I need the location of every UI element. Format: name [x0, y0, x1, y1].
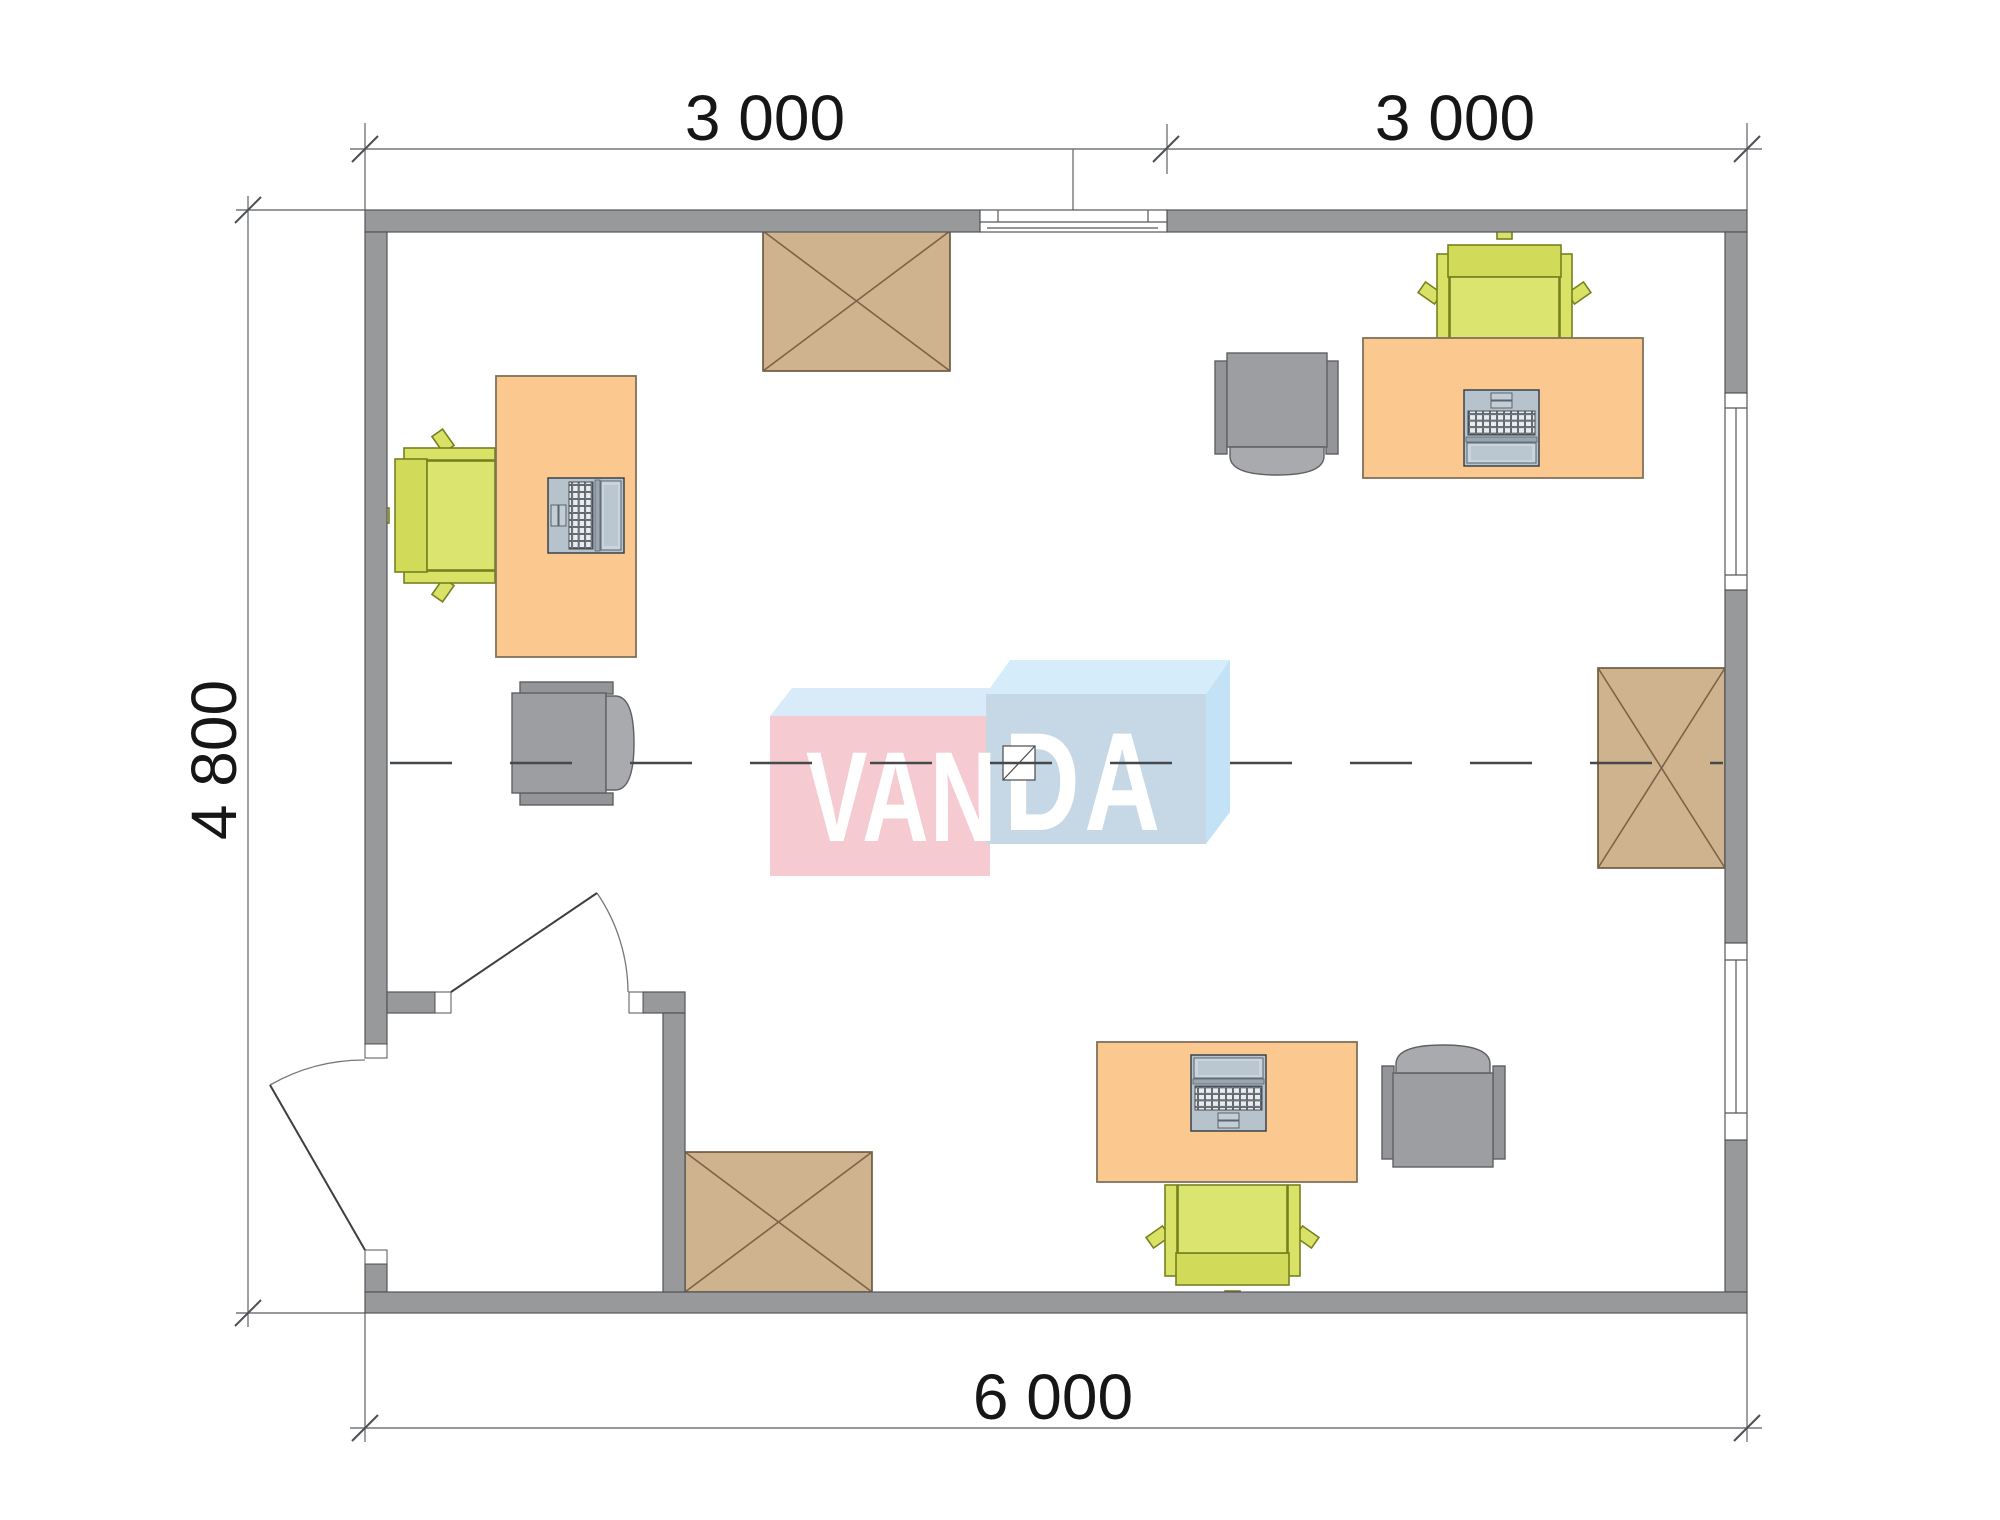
wall-top-right-segment: [1167, 210, 1747, 232]
lounge-chair-center-left: [512, 682, 634, 805]
window-right-upper: [1725, 393, 1747, 590]
wall-top-left-segment: [365, 210, 980, 232]
dimension-label-top-right: 3 000: [1375, 86, 1535, 150]
logo-blue-box-top-face: [986, 660, 1230, 694]
lounge-chair-top-right: [1215, 353, 1338, 475]
wall-left-lower: [365, 1264, 387, 1292]
task-chair-top-right: [1418, 229, 1591, 345]
lounge-chair-bottom-right: [1382, 1045, 1505, 1167]
floor-plan-drawing: VAN DA: [0, 0, 2000, 1520]
interior-door: [451, 893, 628, 992]
logo-text-right: DA: [1004, 704, 1165, 860]
crossed-cabinet-right: [1598, 668, 1725, 868]
wall-left-upper: [365, 232, 387, 1044]
laptop-top-left: [548, 478, 624, 553]
wall-partition-vertical: [663, 1013, 685, 1292]
crossed-cabinet-top: [763, 231, 950, 371]
dimension-label-bottom: 6 000: [973, 1365, 1133, 1429]
crossed-cabinet-bottom: [685, 1152, 872, 1292]
wall-bottom: [365, 1292, 1747, 1313]
window-top: [980, 210, 1167, 232]
wall-right-lower: [1725, 1140, 1747, 1292]
wall-right-upper: [1725, 232, 1747, 393]
logo-pink-box-top-face: [770, 688, 1012, 716]
floor-plan-canvas: VAN DA: [0, 0, 2000, 1520]
entrance-door: [270, 1060, 365, 1250]
laptop-bottom: [1191, 1055, 1266, 1131]
dimension-label-left: 4 800: [182, 680, 246, 840]
logo-text-left: VAN: [806, 725, 998, 868]
door-jambs: [365, 992, 643, 1264]
wall-partition-right: [643, 992, 685, 1013]
task-chair-top-left: [379, 429, 495, 602]
wall-partition-left: [387, 992, 435, 1013]
dimension-label-top-left: 3 000: [685, 86, 845, 150]
vanda-logo-watermark: VAN DA: [770, 660, 1230, 876]
task-chair-bottom: [1146, 1185, 1319, 1301]
window-right-lower: [1725, 943, 1747, 1140]
laptop-top-right: [1464, 390, 1539, 466]
wall-right-middle: [1725, 590, 1747, 943]
